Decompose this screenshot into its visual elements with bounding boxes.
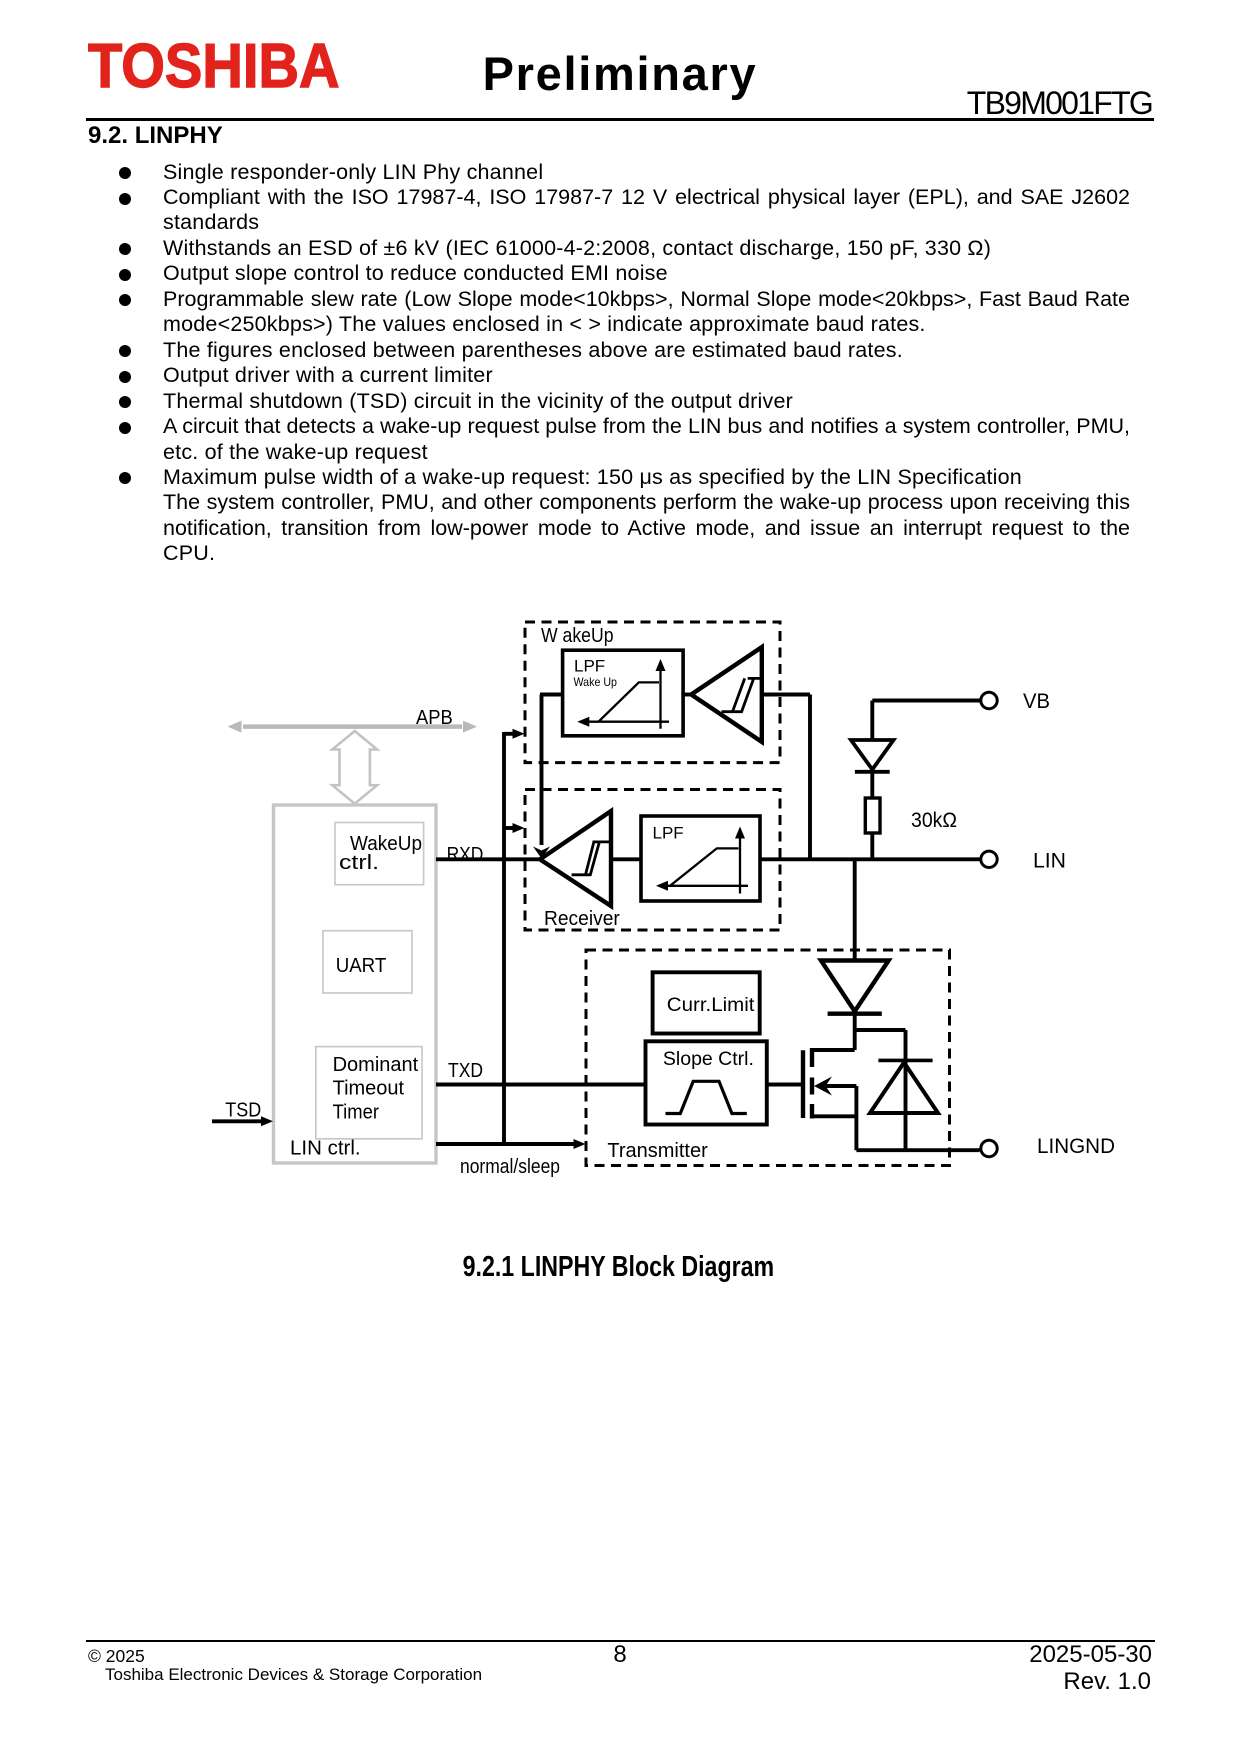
svg-text:Wake Up: Wake Up (574, 675, 618, 689)
svg-text:Timeout: Timeout (333, 1078, 405, 1100)
svg-text:VB: VB (1023, 690, 1050, 713)
svg-text:Timer: Timer (333, 1101, 380, 1123)
svg-text:Receiver: Receiver (544, 908, 620, 930)
svg-text:Slope Ctrl.: Slope Ctrl. (663, 1048, 754, 1070)
svg-text:LIN ctrl.: LIN ctrl. (290, 1137, 361, 1160)
svg-text:W akeUp: W akeUp (541, 625, 614, 647)
svg-text:Curr.Limit: Curr.Limit (667, 994, 755, 1016)
svg-text:LIN: LIN (1033, 850, 1066, 873)
svg-text:TXD: TXD (448, 1059, 483, 1082)
svg-text:UART: UART (336, 955, 387, 977)
svg-text:RXD: RXD (447, 843, 484, 866)
svg-text:Transmitter: Transmitter (607, 1140, 708, 1162)
svg-text:LINGND: LINGND (1037, 1135, 1115, 1158)
svg-text:LPF: LPF (574, 657, 605, 676)
svg-text:APB: APB (416, 707, 453, 729)
svg-text:30kΩ: 30kΩ (911, 809, 957, 832)
svg-text:ctrl.: ctrl. (339, 852, 379, 874)
svg-text:Dominant: Dominant (333, 1054, 419, 1076)
svg-text:LPF: LPF (653, 823, 684, 842)
svg-text:TSD: TSD (225, 1099, 261, 1122)
svg-text:normal/sleep: normal/sleep (460, 1155, 560, 1178)
